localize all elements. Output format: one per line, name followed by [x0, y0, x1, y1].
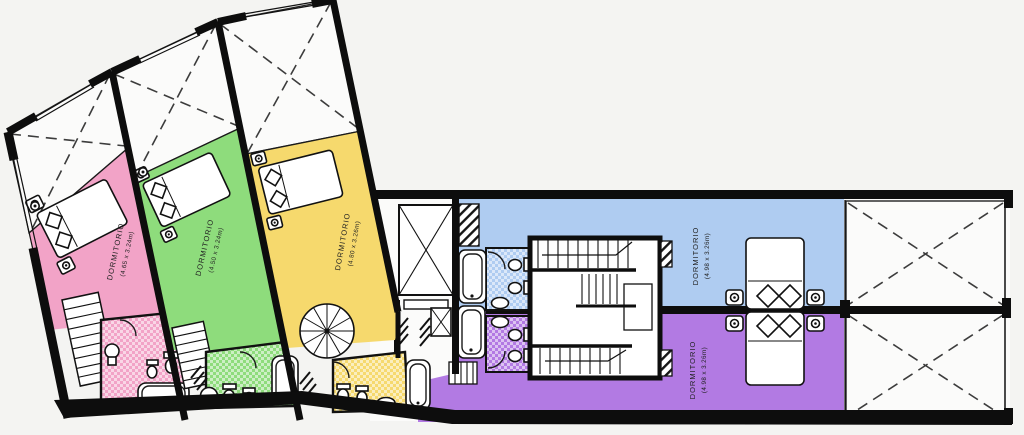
nightstand — [807, 316, 824, 331]
toilet-tank — [223, 384, 236, 389]
wall-corner-tr — [1004, 190, 1013, 208]
room-label-text: DORMITORIO — [691, 227, 700, 286]
room-label-text: DORMITORIO — [688, 341, 697, 400]
bathtub-blue — [459, 250, 486, 303]
sink — [492, 317, 509, 328]
toilet — [509, 330, 522, 341]
spiral-staircase — [300, 304, 354, 358]
floor-plan-svg: DORMITORIO (4.65 x 3.24m) DORMITORIO (4.… — [0, 0, 1024, 435]
bidet — [509, 351, 522, 362]
wall-nub — [840, 300, 850, 318]
wall-wing-left — [452, 196, 459, 374]
sink — [105, 344, 119, 358]
nightstand — [807, 290, 824, 305]
balcony-bottom-right — [846, 313, 1005, 418]
bathroom-blue — [486, 248, 533, 310]
shaft-hatch — [459, 204, 479, 246]
room-dims-text: (4.98 x 3.26m) — [701, 347, 708, 393]
core-shaft-top — [661, 241, 672, 267]
sink-pedestal — [108, 357, 116, 365]
core-shaft-bottom — [661, 350, 672, 376]
stair-core — [530, 238, 672, 378]
wall-nub-right — [1002, 298, 1011, 318]
bathtub-purple — [458, 306, 485, 358]
sink — [492, 298, 509, 309]
bidet-tank — [147, 360, 158, 365]
wall-wing-top — [370, 190, 1012, 199]
nightstand — [726, 290, 743, 305]
toilet — [509, 260, 522, 271]
closet — [399, 205, 453, 309]
nightstand — [726, 316, 743, 331]
shaft-x-box — [431, 308, 451, 336]
bidet — [147, 366, 157, 378]
floor-plan: DORMITORIO (4.65 x 3.24m) DORMITORIO (4.… — [0, 0, 1024, 435]
bathroom-purple — [486, 316, 533, 372]
wall-left-cap — [8, 132, 14, 160]
balcony-top-right — [846, 201, 1005, 307]
bidet-tank — [356, 386, 368, 391]
bathtub-yellow — [406, 360, 430, 410]
room-dims-text: (4.98 x 3.26m) — [704, 233, 711, 279]
bidet — [509, 283, 522, 294]
